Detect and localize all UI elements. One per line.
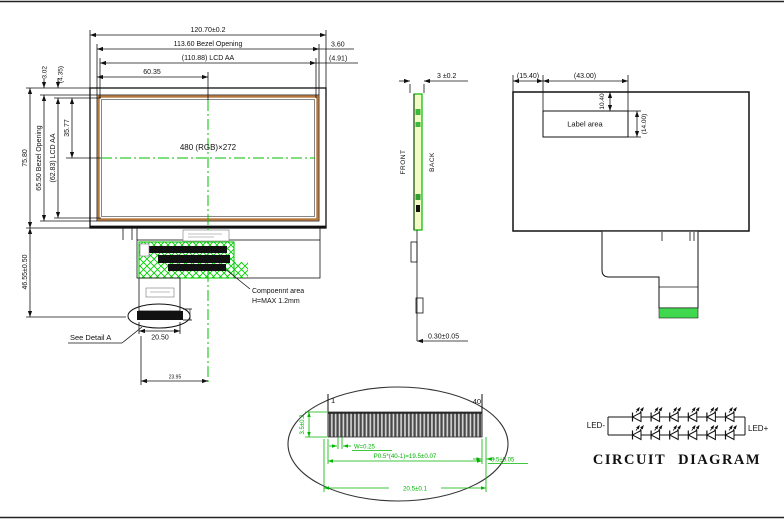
dim-overall-width: 120.70±0.2 xyxy=(191,27,226,34)
dim-top-gap: 3.02 xyxy=(42,66,49,79)
dim-lcd-aa-w: (110.88) LCD AA xyxy=(182,55,235,62)
dim-center-y: 35.77 xyxy=(64,119,71,137)
see-detail-label: See Detail A xyxy=(70,333,111,342)
side-fpc-fold xyxy=(411,242,417,262)
dim-tail-offset: 23.95 xyxy=(169,375,182,381)
dim-thickness: 3 ±0.2 xyxy=(437,73,457,80)
silkscreen-mark xyxy=(140,244,149,256)
label-area: Label area xyxy=(567,120,603,129)
dim-total-width: 20.5±0.1 xyxy=(403,486,428,493)
dim-tail-height: 46.55±0.50 xyxy=(22,254,29,289)
dim-top-gap-aa: (4.35) xyxy=(58,66,65,83)
driver-ic-3 xyxy=(168,264,226,271)
dim-lcd-aa-h: (62.83) LCD AA xyxy=(50,133,57,182)
back-view: (15.40) (43.00) 10.40 Label area (14.00) xyxy=(513,73,749,318)
front-left-extension-lines xyxy=(26,88,126,317)
dim-edge-margin: 0.5±0.05 xyxy=(491,458,515,464)
led-branch-bottom xyxy=(628,426,739,440)
dim-connector-width: 20.50 xyxy=(151,335,169,342)
silkscreen-label-box xyxy=(183,230,229,241)
resolution-label: 480 (RGB)×272 xyxy=(180,143,237,152)
tail-label-box xyxy=(146,288,174,297)
dim-label-height: (14.00) xyxy=(641,114,648,135)
connector-contact-bar xyxy=(137,311,183,320)
dim-bezel-opening-w: 113.60 Bezel Opening xyxy=(174,41,243,48)
circuit-diagram: LED- LED+ CIRCUIT DIAGRAM xyxy=(587,408,769,469)
driver-ic-1 xyxy=(147,246,227,253)
dim-pitch: P0.5*(40-1)=19.5±0.07 xyxy=(374,453,437,460)
driver-ic-2 xyxy=(158,255,230,263)
fpc-flap xyxy=(123,228,320,328)
dim-fpc-thickness: 0.30±0.05 xyxy=(428,334,459,341)
pin-last-label: 40 xyxy=(473,397,481,406)
dim-overall-height: 75.80 xyxy=(22,149,29,167)
dim-center-x: 60.35 xyxy=(143,69,161,76)
detail-a: 1 40 3.5±0.2 W=0.25 P0.5*(40-1)=19.5±0.0… xyxy=(288,387,528,501)
component-area-label-line2: H=MAX 1.2mm xyxy=(252,298,300,305)
led-positive-label: LED+ xyxy=(748,424,769,433)
component-area-label-line1: Compoennt area xyxy=(252,288,304,295)
front-view: 480 (RGB)×272 120.70±0.2 113.60 Bezel Op… xyxy=(22,27,358,385)
circuit-diagram-title: CIRCUIT DIAGRAM xyxy=(593,452,761,468)
dim-right-gap: 3.60 xyxy=(331,42,345,49)
side-view: 3 ±0.2 FRONT BACK 0.30±0.05 xyxy=(399,73,468,341)
label-back: BACK xyxy=(429,152,436,172)
dim-label-top: 10.40 xyxy=(599,93,606,110)
dim-pin-width: W=0.25 xyxy=(354,445,376,451)
connector-pins xyxy=(328,412,482,437)
dim-label-left: (15.40) xyxy=(517,73,539,80)
led-branch-top xyxy=(628,408,739,422)
component-area-hatch-corner xyxy=(234,262,248,278)
dim-label-width: (43.00) xyxy=(574,73,596,80)
led-negative-label: LED- xyxy=(587,421,606,430)
fpc-stiffener xyxy=(659,308,698,318)
engineering-drawing-canvas: 480 (RGB)×272 120.70±0.2 113.60 Bezel Op… xyxy=(0,0,784,519)
drawing-sheet: 480 (RGB)×272 120.70±0.2 113.60 Bezel Op… xyxy=(0,0,784,519)
dim-right-gap-aa: (4.91) xyxy=(329,56,347,63)
pin-first-label: 1 xyxy=(331,396,335,405)
back-fpc-tail xyxy=(602,232,698,308)
label-front: FRONT xyxy=(400,150,407,175)
dim-bezel-opening-h: 65.50 Bezel Opening xyxy=(36,125,43,190)
dim-pin-length: 3.5±0.2 xyxy=(300,414,306,435)
